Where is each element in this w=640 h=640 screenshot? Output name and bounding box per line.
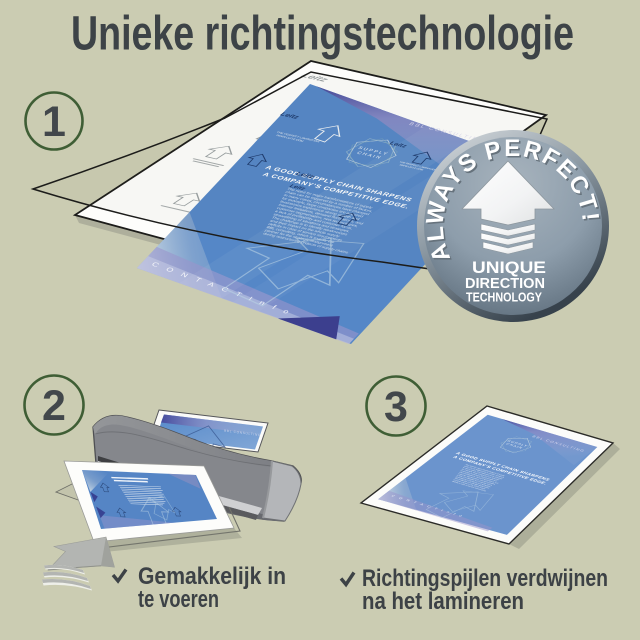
svg-text:TECHNOLOGY: TECHNOLOGY bbox=[466, 290, 542, 305]
svg-text:te voeren: te voeren bbox=[138, 586, 219, 613]
svg-text:1: 1 bbox=[42, 98, 66, 146]
svg-text:3: 3 bbox=[384, 383, 408, 431]
svg-text:UNIQUE: UNIQUE bbox=[472, 259, 546, 277]
svg-text:na het lamineren: na het lamineren bbox=[362, 588, 524, 615]
svg-text:2: 2 bbox=[42, 382, 66, 430]
svg-text:Unieke richtingstechnologie: Unieke richtingstechnologie bbox=[71, 8, 574, 61]
